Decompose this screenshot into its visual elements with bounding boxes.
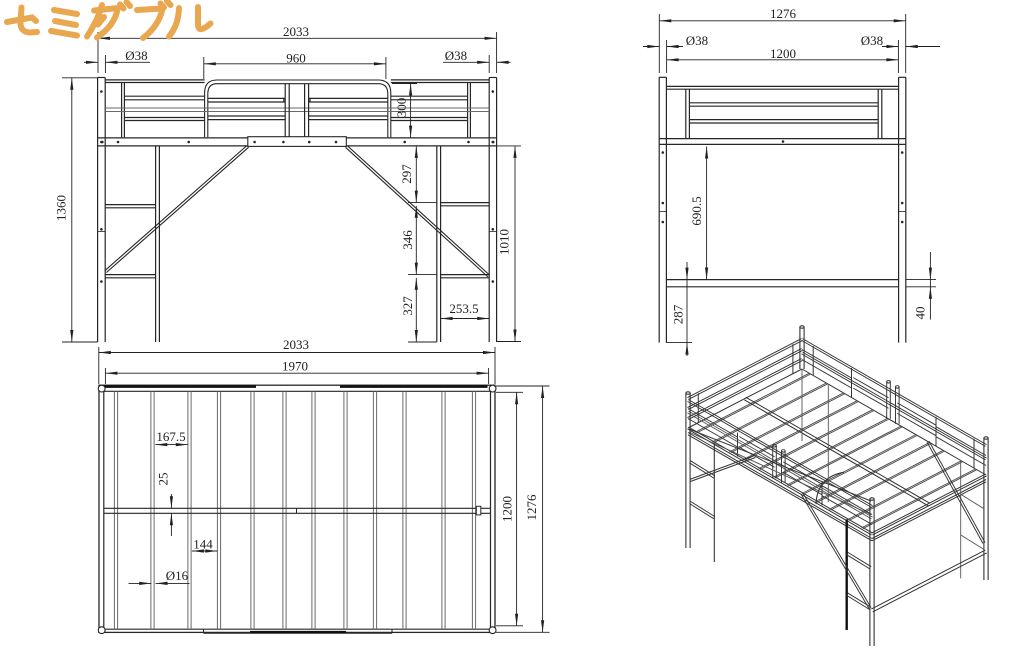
svg-text:297: 297: [399, 164, 414, 184]
svg-text:1276: 1276: [524, 494, 539, 521]
svg-text:1360: 1360: [54, 195, 69, 221]
svg-text:Ø38: Ø38: [686, 33, 708, 48]
svg-text:Ø38: Ø38: [125, 48, 147, 63]
svg-text:2033: 2033: [283, 24, 309, 39]
svg-text:Ø38: Ø38: [445, 48, 467, 63]
svg-text:Ø38: Ø38: [861, 33, 883, 48]
svg-text:2033: 2033: [283, 337, 309, 352]
svg-text:167.5: 167.5: [156, 429, 185, 444]
svg-text:25: 25: [156, 473, 171, 486]
svg-text:327: 327: [400, 296, 415, 316]
svg-text:253.5: 253.5: [449, 301, 478, 316]
svg-text:960: 960: [286, 51, 306, 66]
svg-text:690.5: 690.5: [689, 196, 704, 225]
svg-text:1200: 1200: [500, 496, 515, 522]
svg-text:346: 346: [400, 230, 415, 250]
svg-text:40: 40: [913, 307, 928, 320]
svg-text:144: 144: [193, 537, 213, 552]
svg-text:1200: 1200: [770, 46, 796, 61]
svg-text:1010: 1010: [497, 229, 512, 255]
svg-text:Ø16: Ø16: [166, 568, 189, 583]
svg-text:287: 287: [671, 304, 686, 324]
svg-text:1276: 1276: [770, 6, 797, 21]
svg-text:1970: 1970: [282, 359, 308, 374]
svg-text:300: 300: [394, 98, 409, 118]
